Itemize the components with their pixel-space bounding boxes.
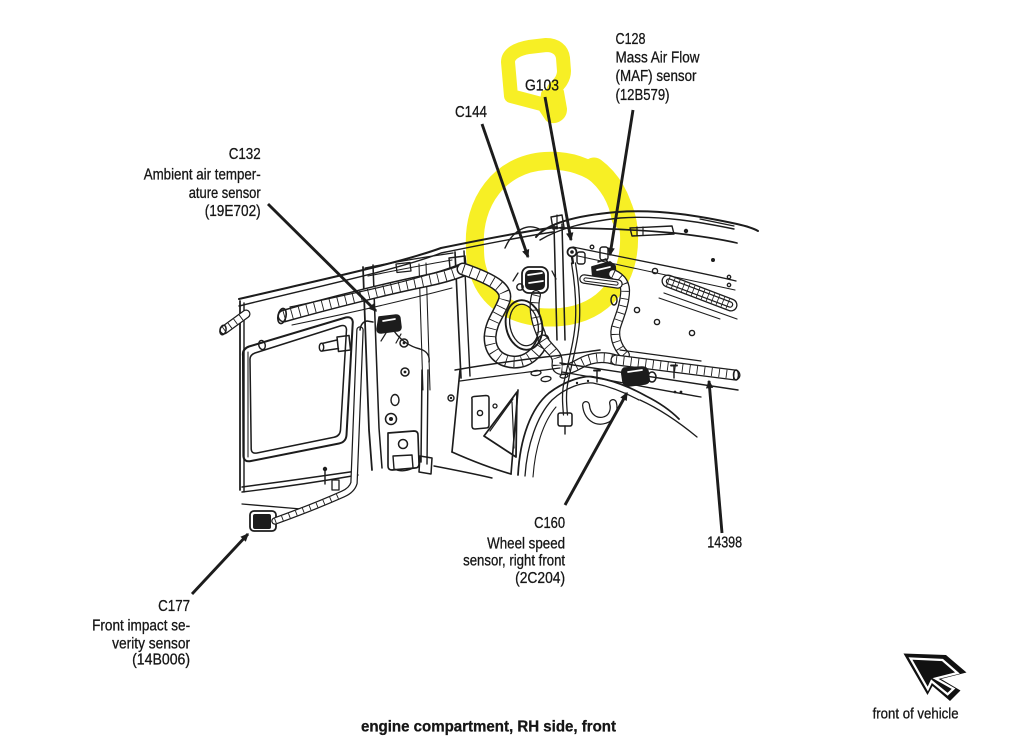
svg-text:Mass Air Flow: Mass Air Flow (616, 49, 700, 66)
svg-text:ature sensor: ature sensor (189, 185, 262, 202)
svg-text:(12B579): (12B579) (616, 87, 670, 104)
svg-text:14398: 14398 (707, 534, 742, 551)
svg-text:C128: C128 (616, 31, 646, 48)
svg-text:(MAF) sensor: (MAF) sensor (616, 68, 698, 85)
svg-text:sensor, right front: sensor, right front (463, 552, 565, 569)
svg-text:Front impact se-: Front impact se- (92, 618, 190, 635)
svg-text:(2C204): (2C204) (515, 570, 565, 587)
svg-text:C160: C160 (534, 515, 565, 532)
svg-text:front of vehicle: front of vehicle (873, 705, 959, 722)
svg-text:G103: G103 (525, 78, 559, 95)
svg-text:(14B006): (14B006) (132, 652, 190, 669)
svg-text:C144: C144 (455, 104, 487, 121)
svg-text:engine compartment, RH side, f: engine compartment, RH side, front (361, 719, 617, 736)
svg-text:Ambient air temper-: Ambient air temper- (144, 167, 261, 184)
svg-text:C177: C177 (158, 598, 190, 615)
svg-text:(19E702): (19E702) (205, 203, 261, 220)
svg-text:verity sensor: verity sensor (112, 636, 191, 653)
svg-text:C132: C132 (229, 146, 261, 163)
svg-text:Wheel speed: Wheel speed (487, 535, 565, 552)
